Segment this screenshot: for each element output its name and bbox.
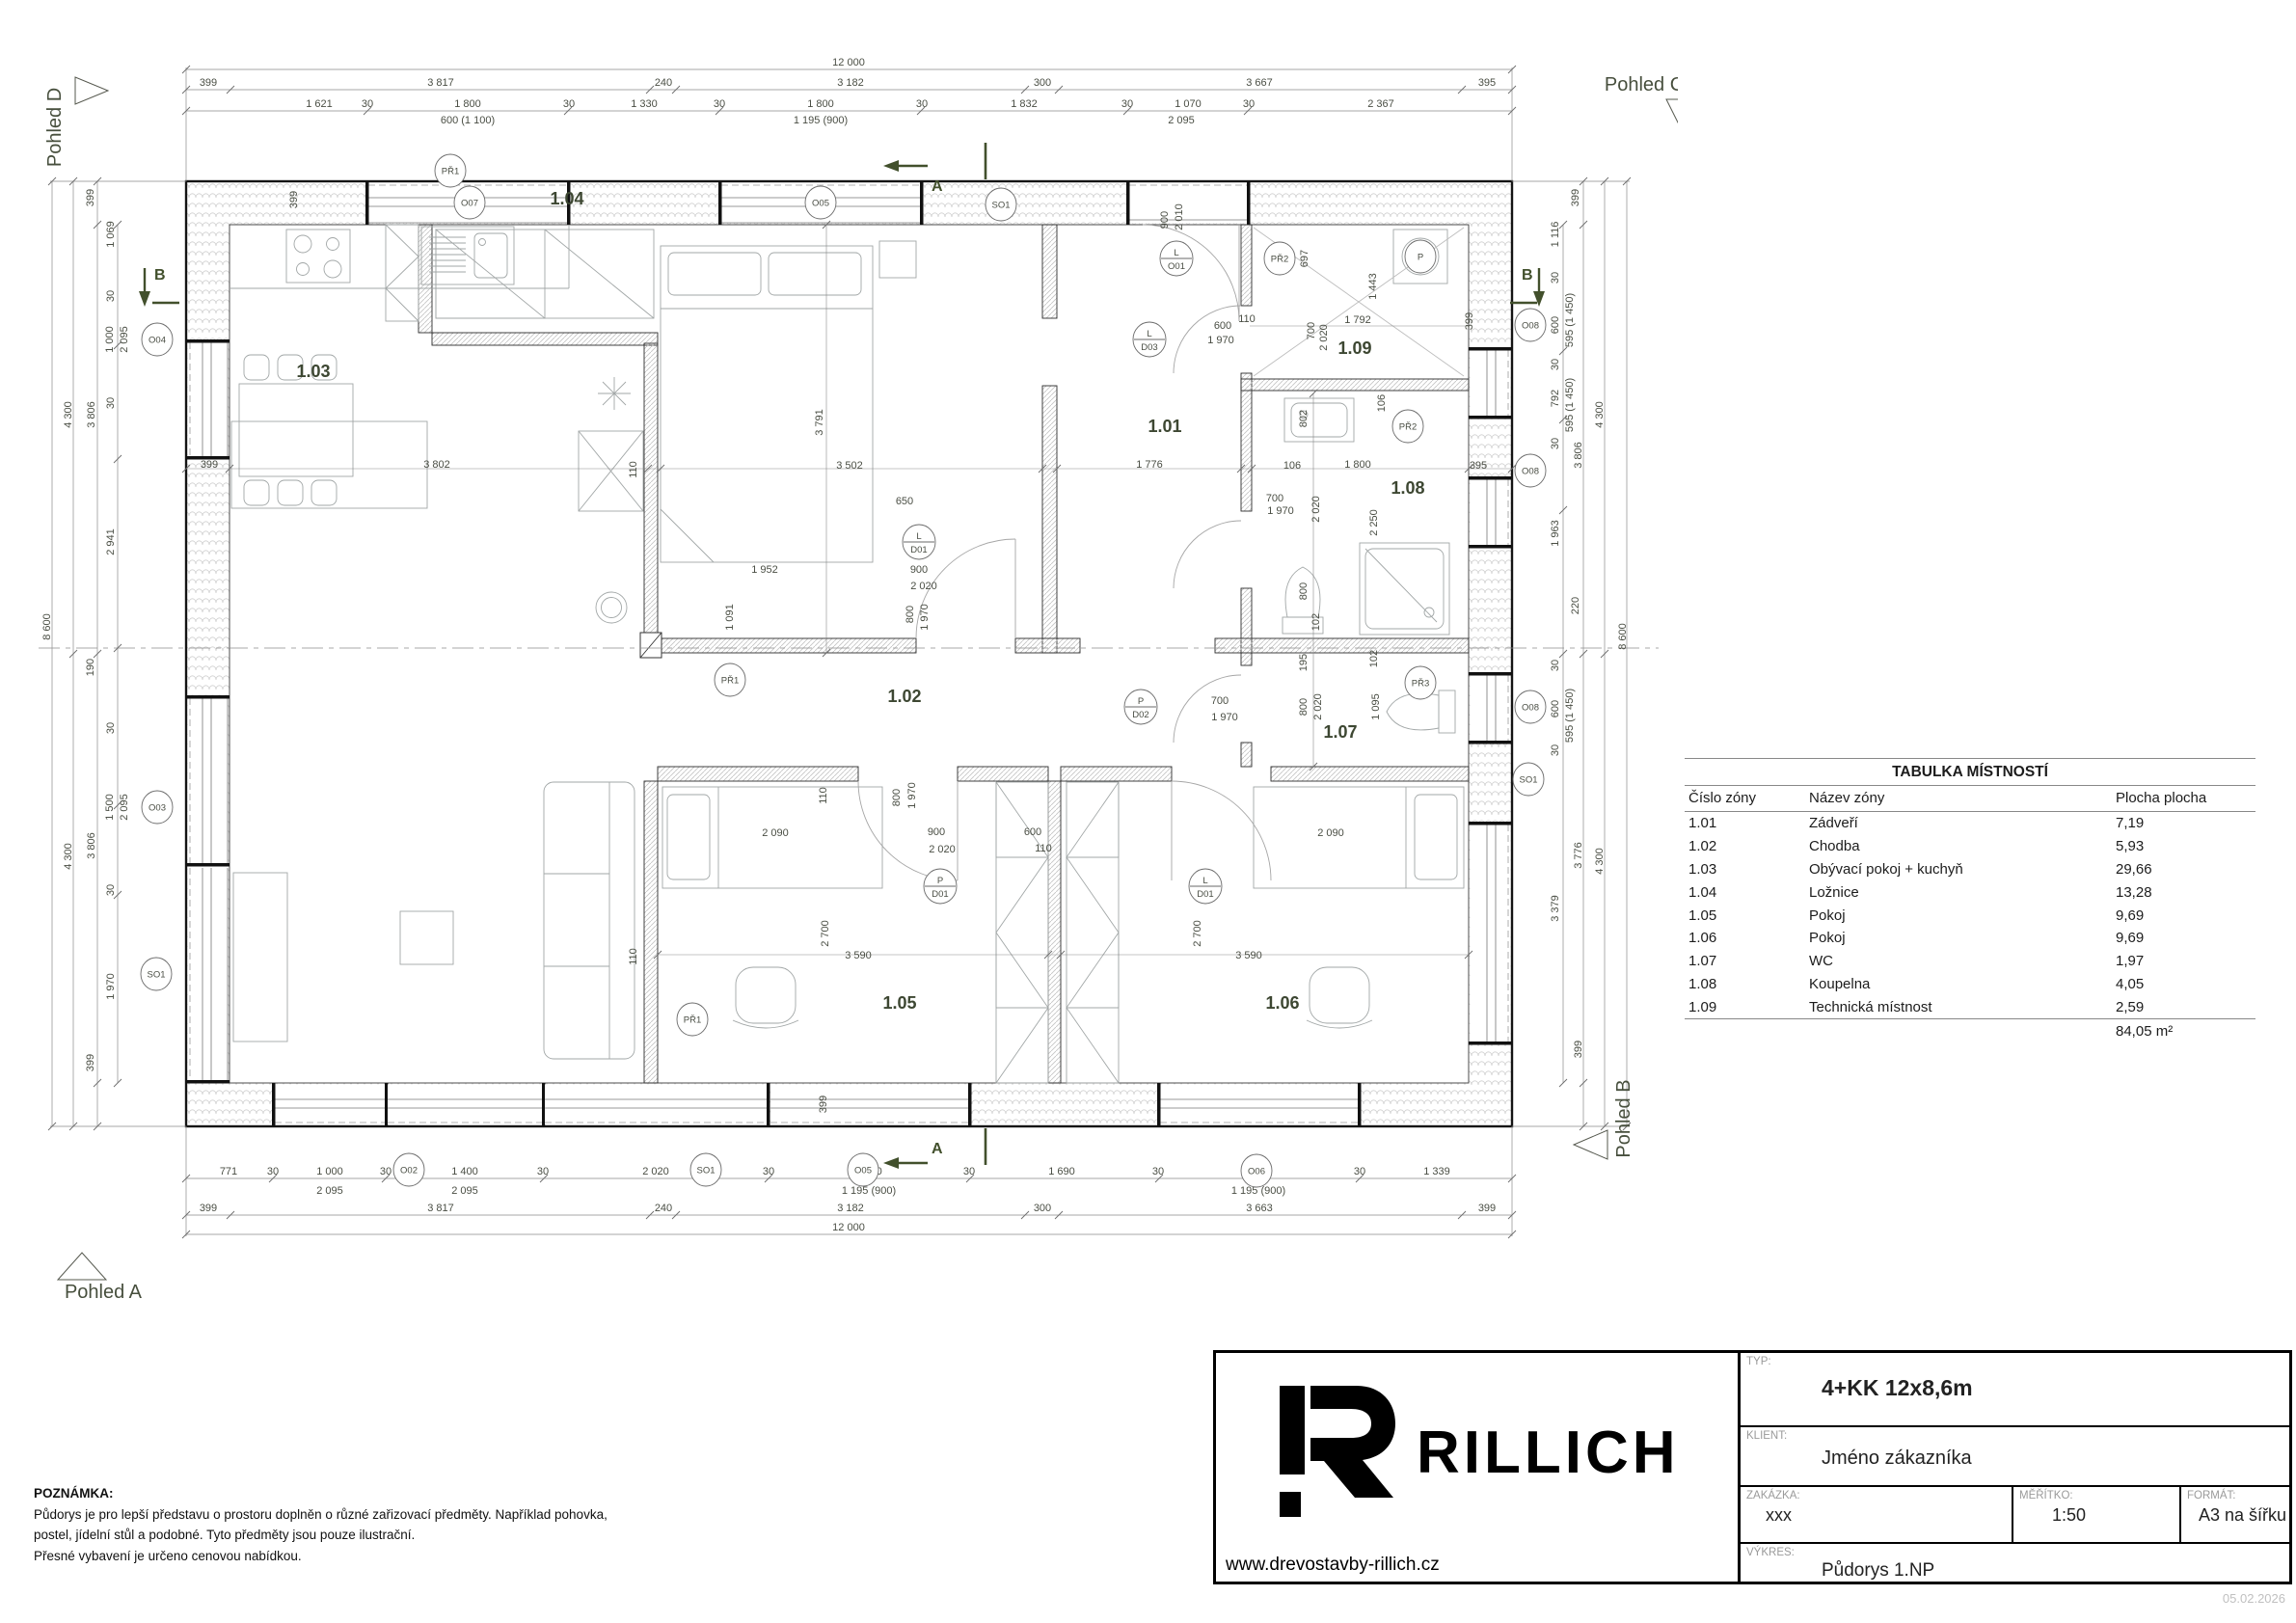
room-table-title: TABULKA MÍSTNOSTÍ (1685, 758, 2255, 786)
section-b-left (139, 268, 150, 307)
room-name: Obývací pokoj + kuchyň (1809, 861, 2116, 878)
room-number-labels: 1.011.021.031.041.051.061.071.081.09 (296, 189, 1424, 1013)
dining-table (239, 384, 353, 476)
dim-label: 700 (1266, 493, 1283, 504)
vykres-row: VÝKRES: Půdorys 1.NP (1741, 1544, 2289, 1582)
dim-label: 3 182 (837, 77, 864, 89)
room-name: Technická místnost (1809, 999, 2116, 1015)
dim-label: 800 (1298, 582, 1310, 600)
dim-label: 792 (1550, 390, 1561, 407)
dim-label: 1 800 (454, 98, 481, 110)
pillow (668, 253, 761, 295)
marker-O05: O05 (812, 199, 829, 209)
dim-label: 110 (628, 461, 639, 478)
meritko-value: 1:50 (2013, 1501, 2179, 1526)
bed-106 (1254, 787, 1464, 888)
dim-label: 399 (200, 1203, 217, 1214)
coffee-table (400, 911, 453, 964)
dim-label: 30 (267, 1166, 279, 1177)
dim-label: 30 (537, 1166, 549, 1177)
room-number: 1.05 (1685, 907, 1809, 924)
room-number: 1.01 (1685, 815, 1809, 831)
room-area: 9,69 (2116, 930, 2255, 946)
entry-door-SO1 (1126, 181, 1251, 225)
drawing-page: 12 0003993 8172403 1823003 6673951 62130… (0, 0, 2296, 1623)
dim-label: 3 806 (1573, 442, 1584, 469)
dim-label: 12 000 (832, 1222, 865, 1233)
dim-label: 1 070 (1175, 98, 1202, 110)
dim-label: 1 970 (919, 604, 931, 631)
dim-label: 30 (763, 1166, 774, 1177)
title-block-info: TYP: 4+KK 12x8,6m KLIENT: Jméno zákazník… (1741, 1353, 2289, 1582)
marker-L-D03: L (1147, 329, 1151, 339)
dim-label: 399 (818, 1096, 829, 1113)
dim-label: 110 (818, 787, 829, 804)
dim-label: 1 792 (1344, 314, 1371, 326)
table-row: 1.04Ložnice13,28 (1685, 880, 2255, 904)
dim-label: 2 020 (910, 581, 937, 592)
marker-SO1: SO1 (696, 1166, 715, 1177)
table-row: 1.09Technická místnost2,59 (1685, 995, 2255, 1018)
dim-label: 1 116 (1550, 222, 1561, 248)
dim-label: 30 (1354, 1166, 1365, 1177)
window-SO1-right (1469, 822, 1512, 1045)
website-text: www.drevostavby-rillich.cz (1226, 1555, 1440, 1576)
sofa (544, 782, 635, 1059)
room-table-total-row: 84,05 m² (1685, 1018, 2255, 1043)
dim-label: 30 (563, 98, 575, 110)
dim-label: 1 095 (1370, 693, 1382, 720)
marker-L-O01: L (1174, 248, 1178, 258)
note-line: Půdorys je pro lepší představu o prostor… (34, 1504, 608, 1526)
dim-label: 771 (220, 1166, 237, 1177)
desk-chair (1310, 967, 1369, 1023)
typ-row: TYP: 4+KK 12x8,6m (1741, 1353, 2289, 1427)
dim-label: 2 020 (929, 844, 956, 855)
drawing-date: 05.02.2026 (2160, 1591, 2285, 1606)
section-letter-a: A (932, 1141, 943, 1157)
dim-label: 1 443 (1367, 273, 1379, 300)
dim-label: 102 (1368, 650, 1380, 667)
dim-label: 800 (1298, 698, 1310, 716)
marker-O06: O06 (1248, 1167, 1265, 1177)
dim-label: 3 663 (1246, 1203, 1273, 1214)
dim-label: 4 300 (63, 843, 74, 870)
table-row: 1.01Zádveří7,19 (1685, 812, 2255, 835)
note-line: Přesné vybavení je určeno cenovou nabídk… (34, 1546, 608, 1567)
dim-label: 30 (1243, 98, 1255, 110)
dim-label: 1 069 (105, 221, 117, 248)
room-area: 4,05 (2116, 976, 2255, 992)
dim-label: 30 (105, 722, 117, 734)
dim-label: 30 (963, 1166, 975, 1177)
view-triangle-b (1574, 1130, 1607, 1159)
marker-SO1: SO1 (991, 201, 1010, 211)
dim-label: 802 (1298, 410, 1310, 427)
window-SO1-left (186, 868, 230, 1084)
basket (596, 592, 627, 623)
marker-PŘ2: PŘ2 (1399, 422, 1417, 433)
marker-L-D01: D01 (910, 545, 927, 555)
section-letter-a: A (932, 178, 943, 195)
dim-label: 395 (1478, 77, 1496, 89)
dim-label: 3 379 (1550, 895, 1561, 922)
dim-label: 240 (655, 1203, 672, 1214)
room-area: 13,28 (2116, 884, 2255, 901)
dim-label: 600 (1 100) (441, 115, 495, 126)
room-label-1.04: 1.04 (550, 189, 583, 208)
dim-label: 3 802 (423, 459, 450, 471)
format-cell: FORMÁT: A3 na šířku (2181, 1487, 2289, 1542)
dim-label: 4 300 (1594, 401, 1606, 428)
marker-PŘ1: PŘ1 (442, 167, 459, 177)
dim-label: 700 (1306, 322, 1317, 339)
dim-label: 1 970 (906, 782, 918, 809)
bed-main (661, 246, 873, 562)
dim-label: 1 091 (724, 604, 736, 631)
dim-label: 3 590 (845, 950, 872, 961)
dim-label: 595 (1 450) (1564, 378, 1576, 432)
table-row: 1.02Chodba5,93 (1685, 835, 2255, 858)
meritko-cell: MĚŘÍTKO: 1:50 (2013, 1487, 2181, 1542)
room-label-1.02: 1.02 (887, 687, 921, 706)
marker-P-D02: D02 (1132, 710, 1148, 720)
dim-label: 3 806 (86, 401, 97, 428)
marker-O08: O08 (1522, 321, 1539, 332)
dim-label: 1 970 (1211, 712, 1238, 723)
windows-bottom (272, 1083, 1362, 1126)
marker-PŘ2: PŘ2 (1271, 255, 1288, 265)
dim-label: 600 (1550, 316, 1561, 334)
chair (278, 480, 303, 505)
dim-label: 650 (896, 496, 913, 507)
typ-caption: TYP: (1741, 1353, 2289, 1367)
dim-label: 1 000 (104, 326, 116, 353)
dim-label: 3 806 (86, 832, 97, 859)
marker-L-D03: D03 (1141, 342, 1157, 353)
room-number: 1.06 (1685, 930, 1809, 946)
dim-label: 30 (105, 397, 117, 409)
dim-label: 30 (714, 98, 725, 110)
dim-label: 12 000 (832, 57, 865, 68)
marker-L-D01: L (916, 531, 921, 542)
dim-label: 1 800 (807, 98, 834, 110)
room-label-1.08: 1.08 (1391, 478, 1424, 498)
room-label-1.01: 1.01 (1148, 417, 1181, 436)
marker-P-D01: D01 (932, 889, 948, 900)
marker-O02: O02 (400, 1166, 418, 1177)
dim-label: 1 970 (105, 973, 117, 1000)
dim-label: 1 776 (1136, 459, 1163, 471)
rillich-logo: RILLICH (1274, 1380, 1688, 1534)
section-a-bottom (883, 1157, 928, 1169)
dim-label: 3 791 (814, 409, 825, 436)
dim-label: 110 (1238, 313, 1256, 325)
format-caption: FORMÁT: (2181, 1487, 2289, 1501)
dim-label: 220 (1570, 597, 1581, 614)
dim-label: 3 590 (1235, 950, 1262, 961)
dim-label: 1 330 (631, 98, 658, 110)
dim-label: 1 832 (1011, 98, 1038, 110)
tv-board (233, 873, 287, 1041)
dim-label: 2 095 (119, 326, 130, 353)
marker-PŘ1: PŘ1 (721, 676, 739, 687)
typ-value: 4+KK 12x8,6m (1741, 1367, 2289, 1401)
marker-SO1: SO1 (1519, 775, 1537, 786)
meritko-caption: MĚŘÍTKO: (2013, 1487, 2179, 1501)
chair (244, 355, 269, 380)
room-number: 1.02 (1685, 838, 1809, 854)
dim-label: 110 (1035, 843, 1052, 854)
dim-label: 30 (1550, 272, 1561, 284)
dim-label: 106 (1376, 394, 1388, 412)
room-label-1.07: 1.07 (1323, 722, 1357, 742)
table-row: 1.07WC1,97 (1685, 950, 2255, 973)
dim-label: 102 (1310, 613, 1322, 631)
vykres-value: Půdorys 1.NP (1741, 1558, 2289, 1582)
dim-label: 399 (1478, 1203, 1496, 1214)
desk-chair (736, 967, 796, 1023)
dim-label: 2 095 (451, 1185, 478, 1197)
marker-P-D01: P (937, 876, 943, 886)
room-table-total: 84,05 m² (2116, 1023, 2255, 1040)
note-line: postel, jídelní stůl a podobné. Tyto pře… (34, 1525, 608, 1546)
dim-label: 399 (85, 189, 96, 206)
wardrobe-106 (1067, 782, 1119, 1083)
room-area: 7,19 (2116, 815, 2255, 831)
plant (598, 377, 631, 410)
dim-label: 1 690 (1048, 1166, 1075, 1177)
dim-label: 3 502 (836, 460, 863, 472)
room-name: Pokoj (1809, 930, 2116, 946)
table-row: 1.03Obývací pokoj + kuchyň29,66 (1685, 858, 2255, 881)
room-table-body: 1.01Zádveří7,191.02Chodba5,931.03Obývací… (1685, 812, 2255, 1018)
room-table: TABULKA MÍSTNOSTÍ Číslo zóny Název zóny … (1685, 758, 2255, 1043)
dim-label: 2 020 (1310, 496, 1322, 523)
dim-label: 1 621 (306, 98, 333, 110)
dim-label: 2 367 (1367, 98, 1394, 110)
view-label-c: Pohled C (1605, 74, 1678, 95)
marker-O03: O03 (149, 803, 166, 814)
room-table-header: Číslo zóny Název zóny Plocha plocha (1685, 786, 2255, 812)
dim-label: 4 300 (63, 401, 74, 428)
dim-label: 8 600 (1617, 623, 1629, 650)
dim-label: 30 (105, 290, 117, 302)
view-label-b: Pohled B (1613, 1079, 1634, 1157)
dim-label: 399 (288, 191, 300, 208)
dim-label: 1 339 (1423, 1166, 1450, 1177)
drainer (429, 237, 466, 272)
note-block: POZNÁMKA: Půdorys je pro lepší představu… (34, 1483, 608, 1566)
dim-label: 2 020 (1312, 693, 1324, 720)
meta-row: ZAKÁZKA: xxx MĚŘÍTKO: 1:50 FORMÁT: A3 na… (1741, 1487, 2289, 1544)
table-row: 1.08Koupelna4,05 (1685, 972, 2255, 995)
dim-label: 1 400 (451, 1166, 478, 1177)
col-header-cislo: Číslo zóny (1685, 790, 1809, 806)
dim-label: 399 (201, 459, 218, 471)
room-label-1.09: 1.09 (1337, 338, 1371, 358)
dim-label: 300 (1034, 77, 1051, 89)
klient-value: Jméno zákazníka (1741, 1442, 2289, 1470)
dim-label: 1 500 (104, 794, 116, 821)
marker-PŘ3: PŘ3 (1412, 679, 1429, 690)
dim-label: 195 (1298, 654, 1310, 671)
dim-label: 3 817 (427, 1203, 454, 1214)
dim-label: 395 (1470, 460, 1487, 472)
dim-label: 190 (85, 659, 96, 676)
dim-label: 1 800 (1344, 459, 1371, 471)
brand-text: RILLICH (1417, 1420, 1680, 1486)
room-name: Chodba (1809, 838, 2116, 854)
zakazka-cell: ZAKÁZKA: xxx (1741, 1487, 2013, 1542)
dim-label: 2 090 (1317, 827, 1344, 839)
dim-label: 110 (628, 948, 639, 965)
dim-label: 2 090 (762, 827, 789, 839)
marker-L-D01: D01 (1197, 889, 1213, 900)
marker-O04: O04 (149, 336, 166, 346)
dim-label: 30 (916, 98, 928, 110)
room-name: Pokoj (1809, 907, 2116, 924)
dim-label: 900 (910, 564, 928, 576)
dim-label: 900 (928, 826, 945, 838)
marker-P: P (1418, 253, 1423, 263)
col-header-plocha: Plocha plocha (2116, 790, 2255, 806)
dim-label: 106 (1283, 460, 1301, 472)
room-number: 1.04 (1685, 884, 1809, 901)
marker-O05: O05 (854, 1166, 872, 1177)
dim-label: 600 (1214, 320, 1231, 332)
room-name: Ložnice (1809, 884, 2116, 901)
room-label-1.03: 1.03 (296, 362, 330, 381)
dim-label: 600 (1024, 826, 1041, 838)
view-triangle-c (1666, 99, 1678, 126)
marker-O08: O08 (1522, 703, 1539, 714)
zakazka-value: xxx (1741, 1501, 2012, 1526)
dim-label: 3 817 (427, 77, 454, 89)
dim-label: 30 (105, 884, 117, 896)
dim-label: 30 (1550, 438, 1561, 449)
dim-label: 399 (85, 1054, 96, 1071)
klient-row: KLIENT: Jméno zákazníka (1741, 1427, 2289, 1487)
dim-label: 399 (1573, 1041, 1584, 1058)
dim-label: 30 (1550, 660, 1561, 671)
room-name: Zádveří (1809, 815, 2116, 831)
dim-label: 2 250 (1368, 509, 1380, 536)
title-block-logo-cell: RILLICH www.drevostavby-rillich.cz (1216, 1353, 1741, 1582)
dim-label: 30 (380, 1166, 392, 1177)
room-area: 1,97 (2116, 953, 2255, 969)
room-name: Koupelna (1809, 976, 2116, 992)
zakazka-caption: ZAKÁZKA: (1741, 1487, 2012, 1501)
dim-label: 30 (1121, 98, 1133, 110)
section-b-right (1533, 268, 1545, 307)
format-value: A3 na šířku (2181, 1501, 2289, 1526)
room-area: 5,93 (2116, 838, 2255, 854)
dim-label: 30 (1152, 1166, 1164, 1177)
dim-label: 8 600 (41, 613, 53, 640)
vanity (1284, 398, 1354, 442)
title-block: RILLICH www.drevostavby-rillich.cz TYP: … (1213, 1350, 2292, 1584)
dim-label: 2 095 (119, 794, 130, 821)
marker-L-O01: O01 (1168, 261, 1185, 272)
dim-label: 2 700 (1192, 920, 1203, 947)
partitions (419, 225, 1469, 1083)
axes (39, 143, 1659, 1165)
dim-label: 3 667 (1246, 77, 1273, 89)
dim-label: 2 020 (642, 1166, 669, 1177)
dim-label: 1 195 (900) (842, 1185, 896, 1197)
dim-label: 1 970 (1267, 505, 1294, 517)
marker-SO1: SO1 (147, 970, 165, 981)
window-O04 (186, 339, 230, 460)
pillow (769, 253, 861, 295)
vykres-caption: VÝKRES: (1741, 1544, 2289, 1558)
dim-label: 2 095 (316, 1185, 343, 1197)
chair (311, 480, 337, 505)
room-area: 29,66 (2116, 861, 2255, 878)
dim-label: 399 (1464, 312, 1475, 330)
chair (244, 480, 269, 505)
dim-label: 1 000 (316, 1166, 343, 1177)
col-header-nazev: Název zóny (1809, 790, 2116, 806)
view-triangle-a (58, 1253, 106, 1280)
table-row: 1.06Pokoj9,69 (1685, 927, 2255, 950)
room-number: 1.07 (1685, 953, 1809, 969)
windows-O08-right (1469, 347, 1512, 744)
view-label-a: Pohled A (65, 1282, 143, 1303)
room-label-1.05: 1.05 (882, 993, 916, 1013)
dim-label: 800 (905, 606, 916, 623)
section-marks (139, 160, 1545, 1169)
dim-label: 595 (1 450) (1564, 689, 1576, 743)
dim-label: 3 182 (837, 1203, 864, 1214)
dim-label: 900 (1159, 211, 1171, 229)
dim-label: 600 (1550, 700, 1561, 717)
room-number: 1.03 (1685, 861, 1809, 878)
dim-label: 2 941 (105, 528, 117, 555)
dim-label: 30 (362, 98, 373, 110)
dim-label: 399 (200, 77, 217, 89)
table-row: 1.05Pokoj9,69 (1685, 904, 2255, 927)
stove (286, 230, 350, 283)
dim-label: 1 952 (751, 564, 778, 576)
dim-label: 30 (1550, 359, 1561, 370)
marker-PŘ1: PŘ1 (684, 1015, 701, 1026)
marker-L-D01: L (1202, 876, 1207, 886)
dim-label: 1 970 (1207, 335, 1234, 346)
dim-label: 2 700 (820, 920, 831, 947)
section-letter-b: B (154, 267, 166, 284)
dim-label: 2 095 (1168, 115, 1195, 126)
nightstand (879, 241, 916, 278)
dim-label: 3 776 (1573, 842, 1584, 869)
marker-O08: O08 (1522, 467, 1539, 477)
dim-label: 300 (1034, 1203, 1051, 1214)
room-label-1.06: 1.06 (1265, 993, 1299, 1013)
room-number: 1.08 (1685, 976, 1809, 992)
dim-label: 30 (1550, 744, 1561, 756)
opening-markers: O07O05SO1O04O03SO1O08O08O08SO1O02SO1O05O… (141, 154, 1546, 1187)
marker-O07: O07 (461, 199, 478, 209)
floor-plan-canvas: 12 0003993 8172403 1823003 6673951 62130… (0, 0, 1678, 1312)
room-area: 2,59 (2116, 999, 2255, 1015)
dim-label: 2 020 (1318, 324, 1330, 351)
section-a-top (883, 160, 928, 172)
room-number: 1.09 (1685, 999, 1809, 1015)
view-label-d: Pohled D (44, 88, 66, 167)
dim-label: 697 (1299, 250, 1310, 267)
view-triangle-d (75, 77, 108, 104)
